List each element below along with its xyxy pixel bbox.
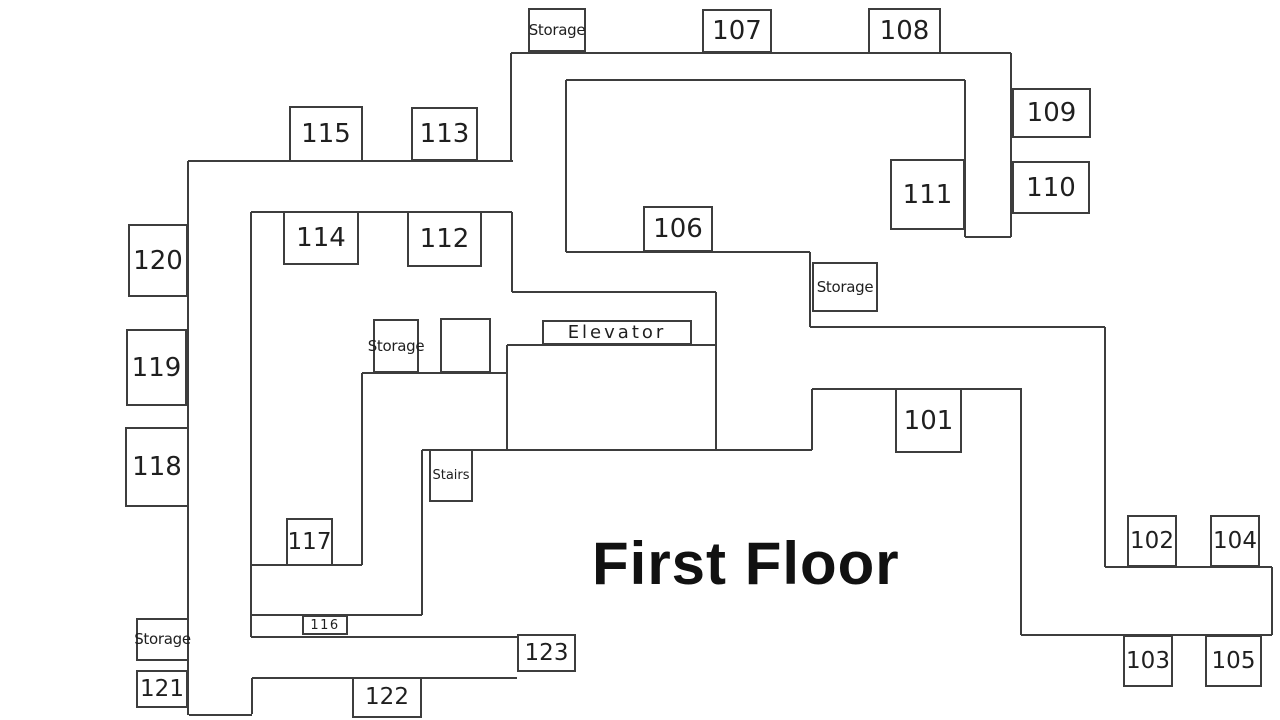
room-box-room-119: 119 [126,329,187,406]
room-label-room-112: 112 [420,226,470,252]
room-box-room-108: 108 [868,8,941,54]
room-label-room-113: 113 [420,121,470,147]
room-label-room-102: 102 [1130,530,1174,553]
room-box-room-103: 103 [1123,635,1173,687]
room-box-room-114: 114 [283,211,359,265]
room-box-stairs: Stairs [429,449,473,502]
room-box-room-118: 118 [125,427,189,507]
room-label-storage-top: Storage [529,23,586,38]
room-label-room-104: 104 [1213,530,1257,553]
room-box-room-121: 121 [136,670,188,708]
room-box-room-105: 105 [1205,635,1262,687]
room-label-elevator: Elevator [568,324,667,342]
room-label-room-123: 123 [525,642,569,665]
room-box-unlabeled-box [440,318,491,373]
room-label-room-110: 110 [1026,175,1076,201]
room-label-room-109: 109 [1027,100,1077,126]
room-box-elevator: Elevator [542,320,692,345]
room-label-stairs: Stairs [432,469,469,482]
room-label-storage-right: Storage [817,280,874,295]
room-label-room-111: 111 [903,182,953,208]
room-box-room-120: 120 [128,224,188,297]
room-box-storage-bottom: Storage [136,618,189,661]
room-label-room-101: 101 [904,408,954,434]
room-label-room-107: 107 [712,18,762,44]
room-label-room-118: 118 [132,454,182,480]
room-label-room-105: 105 [1212,650,1256,673]
room-box-storage-top: Storage [528,8,586,52]
room-box-room-104: 104 [1210,515,1260,567]
room-label-storage-middle: Storage [368,339,425,354]
room-box-room-112: 112 [407,211,482,267]
room-box-room-122: 122 [352,677,422,718]
room-label-room-117: 117 [288,531,332,554]
room-label-room-106: 106 [653,216,703,242]
room-box-room-116: 116 [302,615,348,635]
floorplan: First Floor Storage107108109110111115113… [0,0,1280,720]
room-box-room-115: 115 [289,106,363,162]
room-box-room-111: 111 [890,159,965,230]
room-box-room-102: 102 [1127,515,1177,567]
room-box-room-106: 106 [643,206,713,252]
room-label-room-120: 120 [133,248,183,274]
room-box-room-101: 101 [895,388,962,453]
room-label-room-122: 122 [365,686,409,709]
room-label-room-114: 114 [296,225,346,251]
room-box-room-117: 117 [286,518,333,566]
room-box-room-123: 123 [517,634,576,672]
room-box-room-109: 109 [1012,88,1091,138]
room-box-room-110: 110 [1012,161,1090,214]
floor-title: First Floor [592,529,900,598]
room-box-room-113: 113 [411,107,478,161]
room-label-room-103: 103 [1126,650,1170,673]
room-label-room-116: 116 [310,619,339,632]
room-label-storage-bottom: Storage [134,632,191,647]
room-box-storage-right: Storage [812,262,878,312]
room-box-storage-middle: Storage [373,319,419,373]
room-label-room-115: 115 [301,121,351,147]
room-box-room-107: 107 [702,9,772,53]
room-label-room-108: 108 [880,18,930,44]
room-label-room-121: 121 [140,678,184,701]
room-label-room-119: 119 [132,355,182,381]
